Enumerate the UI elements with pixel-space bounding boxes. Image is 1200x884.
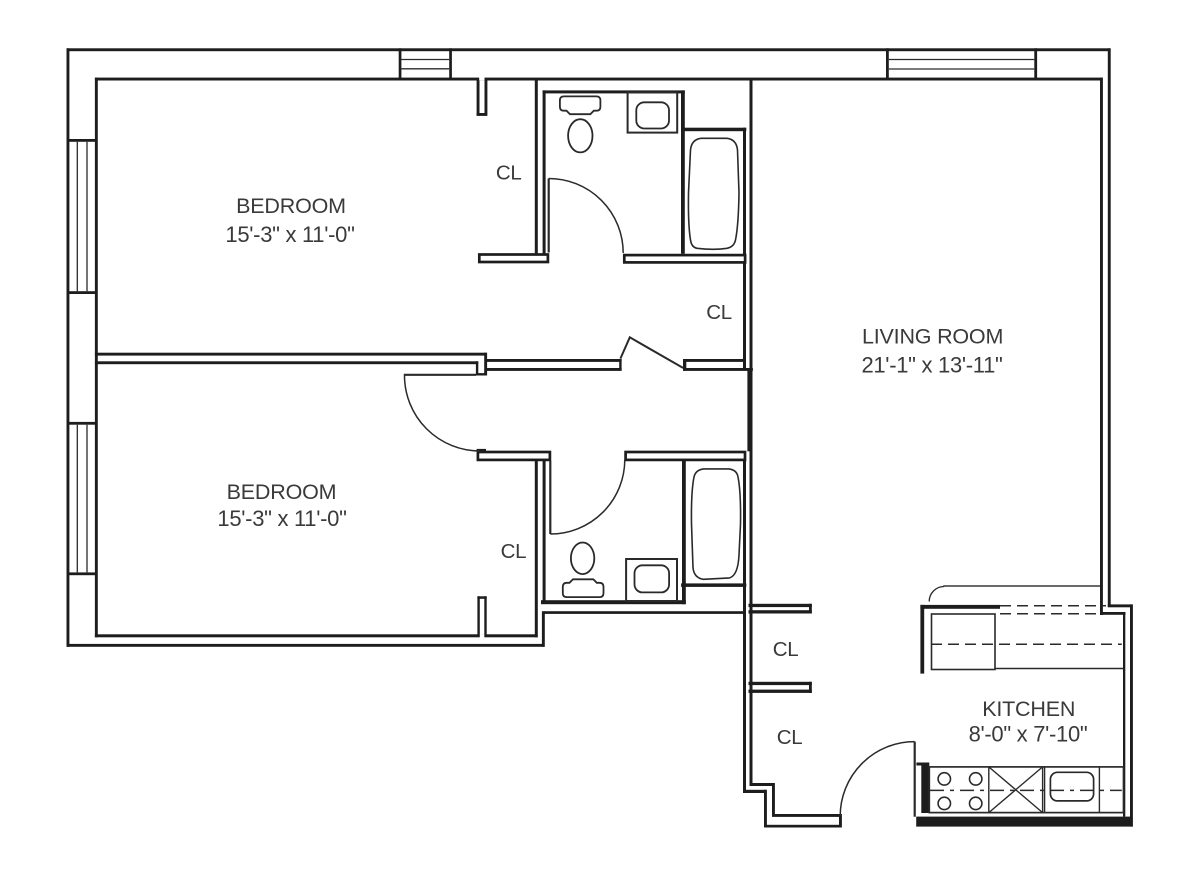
svg-text:CL: CL: [777, 726, 803, 749]
svg-text:LIVING ROOM: LIVING ROOM: [862, 325, 1003, 349]
svg-text:8'-0" x 7'-10": 8'-0" x 7'-10": [969, 722, 1088, 747]
svg-text:15'-3" x 11'-0": 15'-3" x 11'-0": [217, 506, 346, 531]
svg-text:BEDROOM: BEDROOM: [236, 194, 346, 218]
svg-text:BEDROOM: BEDROOM: [227, 480, 337, 504]
svg-text:CL: CL: [773, 638, 799, 661]
svg-text:CL: CL: [496, 161, 522, 184]
svg-text:15'-3" x 11'-0": 15'-3" x 11'-0": [225, 222, 354, 247]
svg-text:21'-1" x 13'-11": 21'-1" x 13'-11": [861, 352, 1002, 377]
svg-text:CL: CL: [706, 301, 732, 324]
svg-text:CL: CL: [501, 540, 527, 563]
svg-text:KITCHEN: KITCHEN: [982, 697, 1075, 721]
